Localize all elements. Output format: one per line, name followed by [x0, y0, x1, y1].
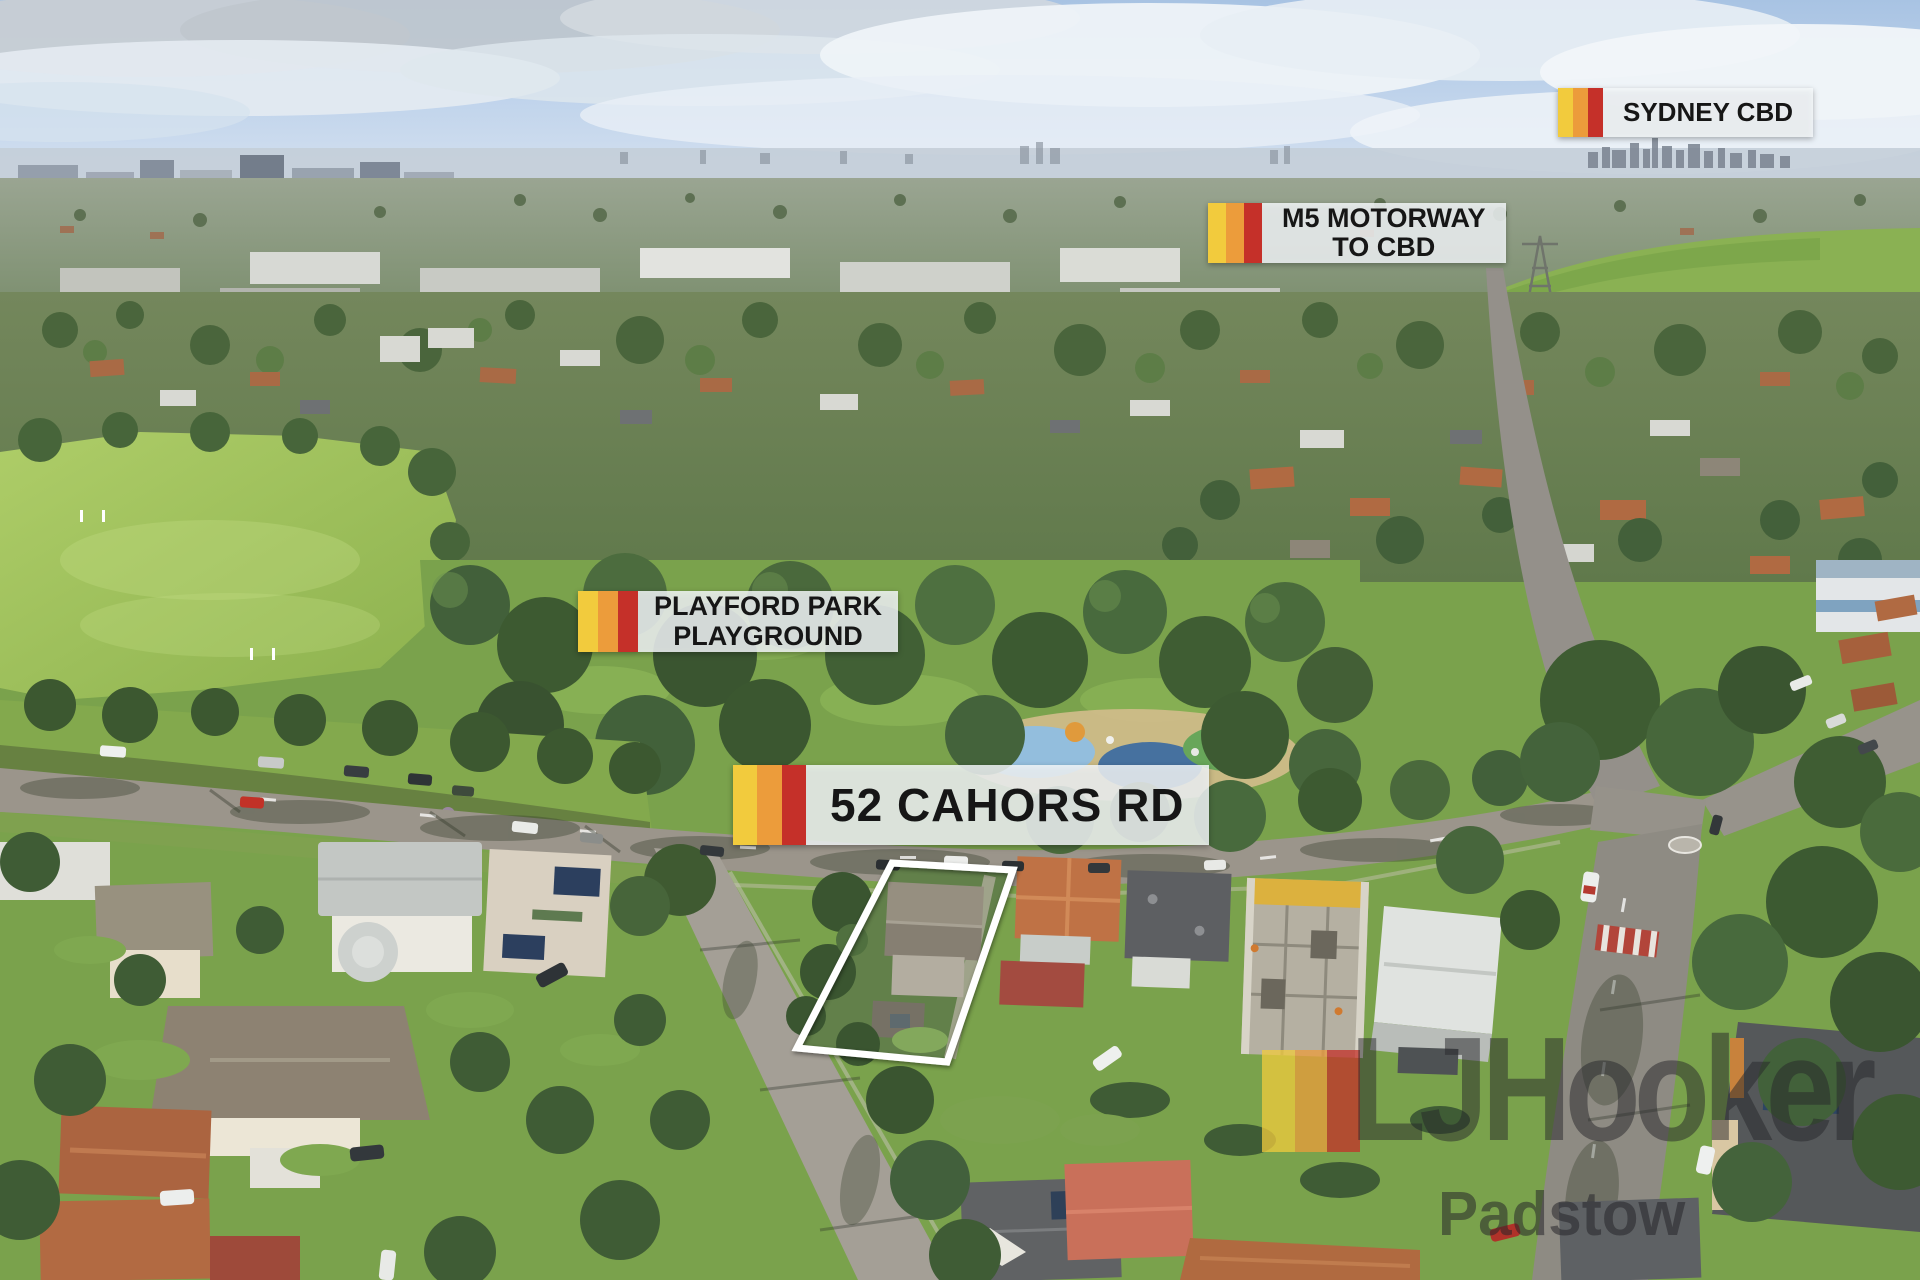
label-m5-motorway: M5 MOTORWAY TO CBD — [1208, 203, 1506, 263]
lj-flag-icon — [1558, 88, 1603, 137]
solar-house — [483, 849, 611, 977]
label-sydney-cbd: SYDNEY CBD — [1558, 88, 1813, 137]
lj-flag-icon — [733, 765, 806, 845]
metal-roof-house — [1370, 906, 1502, 1075]
label-sydney-cbd-text: SYDNEY CBD — [1623, 97, 1793, 128]
aerial-photo — [0, 0, 1920, 1280]
label-m5-line2: TO CBD — [1282, 233, 1486, 262]
aerial-photo-page: SYDNEY CBD M5 MOTORWAY TO CBD PLAYFORD P… — [0, 0, 1920, 1280]
modern-building — [1816, 560, 1920, 632]
lj-flag-icon — [578, 591, 638, 652]
label-property-text: 52 CAHORS RD — [830, 778, 1185, 832]
label-playford-park: PLAYFORD PARK PLAYGROUND — [578, 591, 898, 652]
label-playford-line2: PLAYGROUND — [654, 622, 882, 652]
lj-flag-watermark-icon — [1262, 1050, 1360, 1152]
label-playford-line1: PLAYFORD PARK — [654, 592, 882, 622]
label-m5-line1: M5 MOTORWAY — [1282, 204, 1486, 233]
bottom-center-houses — [940, 1082, 1470, 1280]
lj-flag-icon — [1208, 203, 1262, 263]
white-two-story-house — [318, 842, 482, 982]
construction-site — [1241, 878, 1369, 1058]
label-property-address: 52 CAHORS RD — [733, 765, 1209, 845]
bottom-left-houses — [0, 832, 710, 1280]
east-neighbours — [999, 856, 1502, 1075]
sports-field — [0, 412, 470, 700]
